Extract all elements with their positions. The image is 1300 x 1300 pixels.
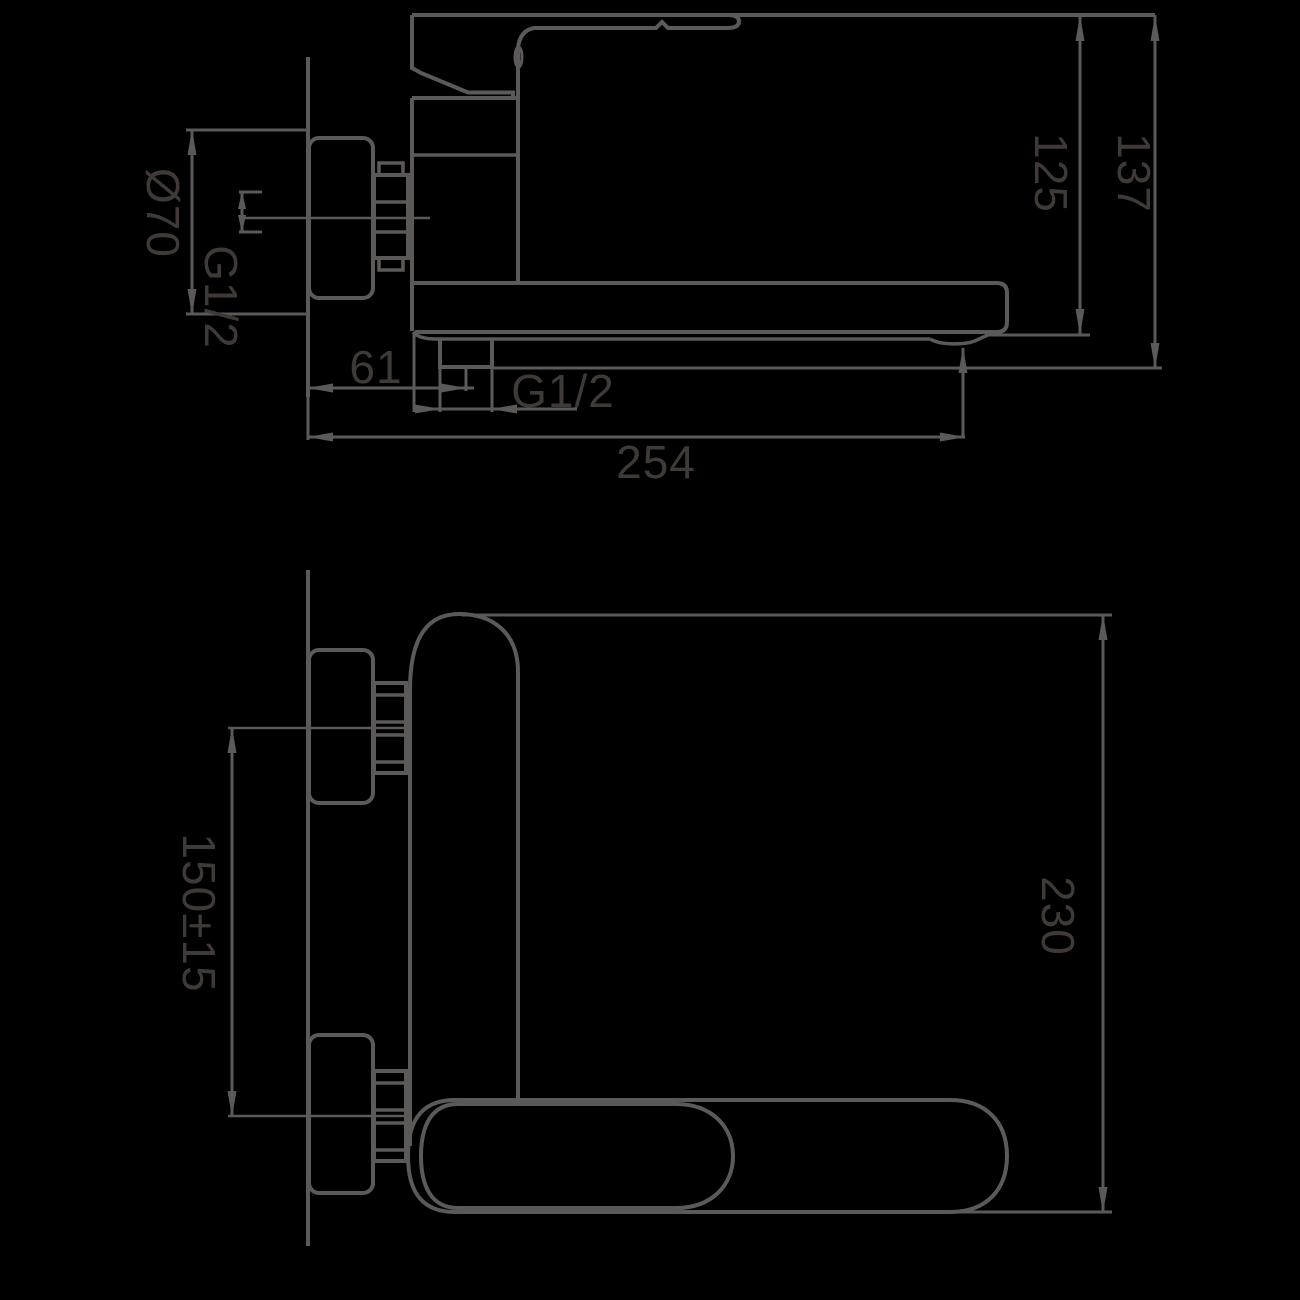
wall-hatch-clearing-top (250, 687, 312, 765)
arrow-right (441, 384, 467, 393)
dimensions-side: Ø70 G1/2 61 G1/2 254 125 137 (137, 15, 1162, 488)
arrow-up (228, 727, 237, 753)
plan-view: 150±15 230 (173, 570, 1112, 1246)
spout-plan (408, 1100, 1007, 1212)
arrow-down (1151, 343, 1160, 369)
faucet-plan (408, 614, 1007, 1212)
shower-outlet-side (440, 339, 492, 367)
wall-hatch-clearing (250, 176, 312, 252)
arrow-left (307, 384, 333, 393)
dimensions-plan: 150±15 230 (173, 614, 1112, 1213)
arrow-right (415, 405, 441, 414)
lever-handle-paddle (412, 15, 513, 98)
wall-hatch-side (254, 57, 308, 397)
arrow-down (238, 215, 246, 233)
arrow-up (188, 129, 197, 155)
label-spout-reach: 230 (1032, 876, 1084, 956)
label-inlet-thread: G1/2 (195, 245, 247, 349)
arrow-up (1151, 15, 1160, 41)
arrow-up (1076, 15, 1085, 41)
wall-section-side (250, 57, 312, 397)
label-flange-diameter: Ø70 (137, 168, 189, 258)
arrow-down (1099, 1187, 1108, 1213)
wall-hatch-plan (254, 570, 308, 1246)
arrow-left (307, 433, 333, 442)
ext-lines-outlet (414, 334, 492, 412)
arrow-up (1099, 614, 1108, 640)
side-view: Ø70 G1/2 61 G1/2 254 125 137 (137, 15, 1162, 488)
label-137: 137 (1108, 133, 1160, 213)
body-top-arch-plan (410, 614, 518, 690)
hex-nut-side (374, 163, 408, 270)
label-61: 61 (349, 341, 402, 393)
label-125: 125 (1025, 133, 1077, 213)
arrow-down (1076, 309, 1085, 335)
technical-drawing-page: Ø70 G1/2 61 G1/2 254 125 137 (0, 0, 1300, 1300)
dim-arrows-plan (228, 614, 1108, 1213)
label-254: 254 (616, 436, 696, 488)
escutcheon-bottom-plan (309, 1035, 373, 1193)
lever-handle-plan (421, 1104, 733, 1208)
faucet-drawing-canvas: Ø70 G1/2 61 G1/2 254 125 137 (0, 0, 1300, 1300)
arrow-up (959, 347, 968, 373)
label-inlet-spacing: 150±15 (173, 833, 225, 992)
label-outlet-thread: G1/2 (511, 365, 615, 417)
spout-deck-side (412, 283, 1007, 332)
arrow-up (238, 191, 246, 209)
dim-arrows-side (188, 15, 1160, 442)
escutcheon-top-plan (309, 650, 373, 803)
supply-pipe-hot (264, 695, 308, 757)
lever-handle-grip (518, 15, 739, 283)
supply-pipe-side (264, 185, 308, 242)
arrow-down (228, 1091, 237, 1117)
wall-section-plan (250, 570, 312, 1246)
